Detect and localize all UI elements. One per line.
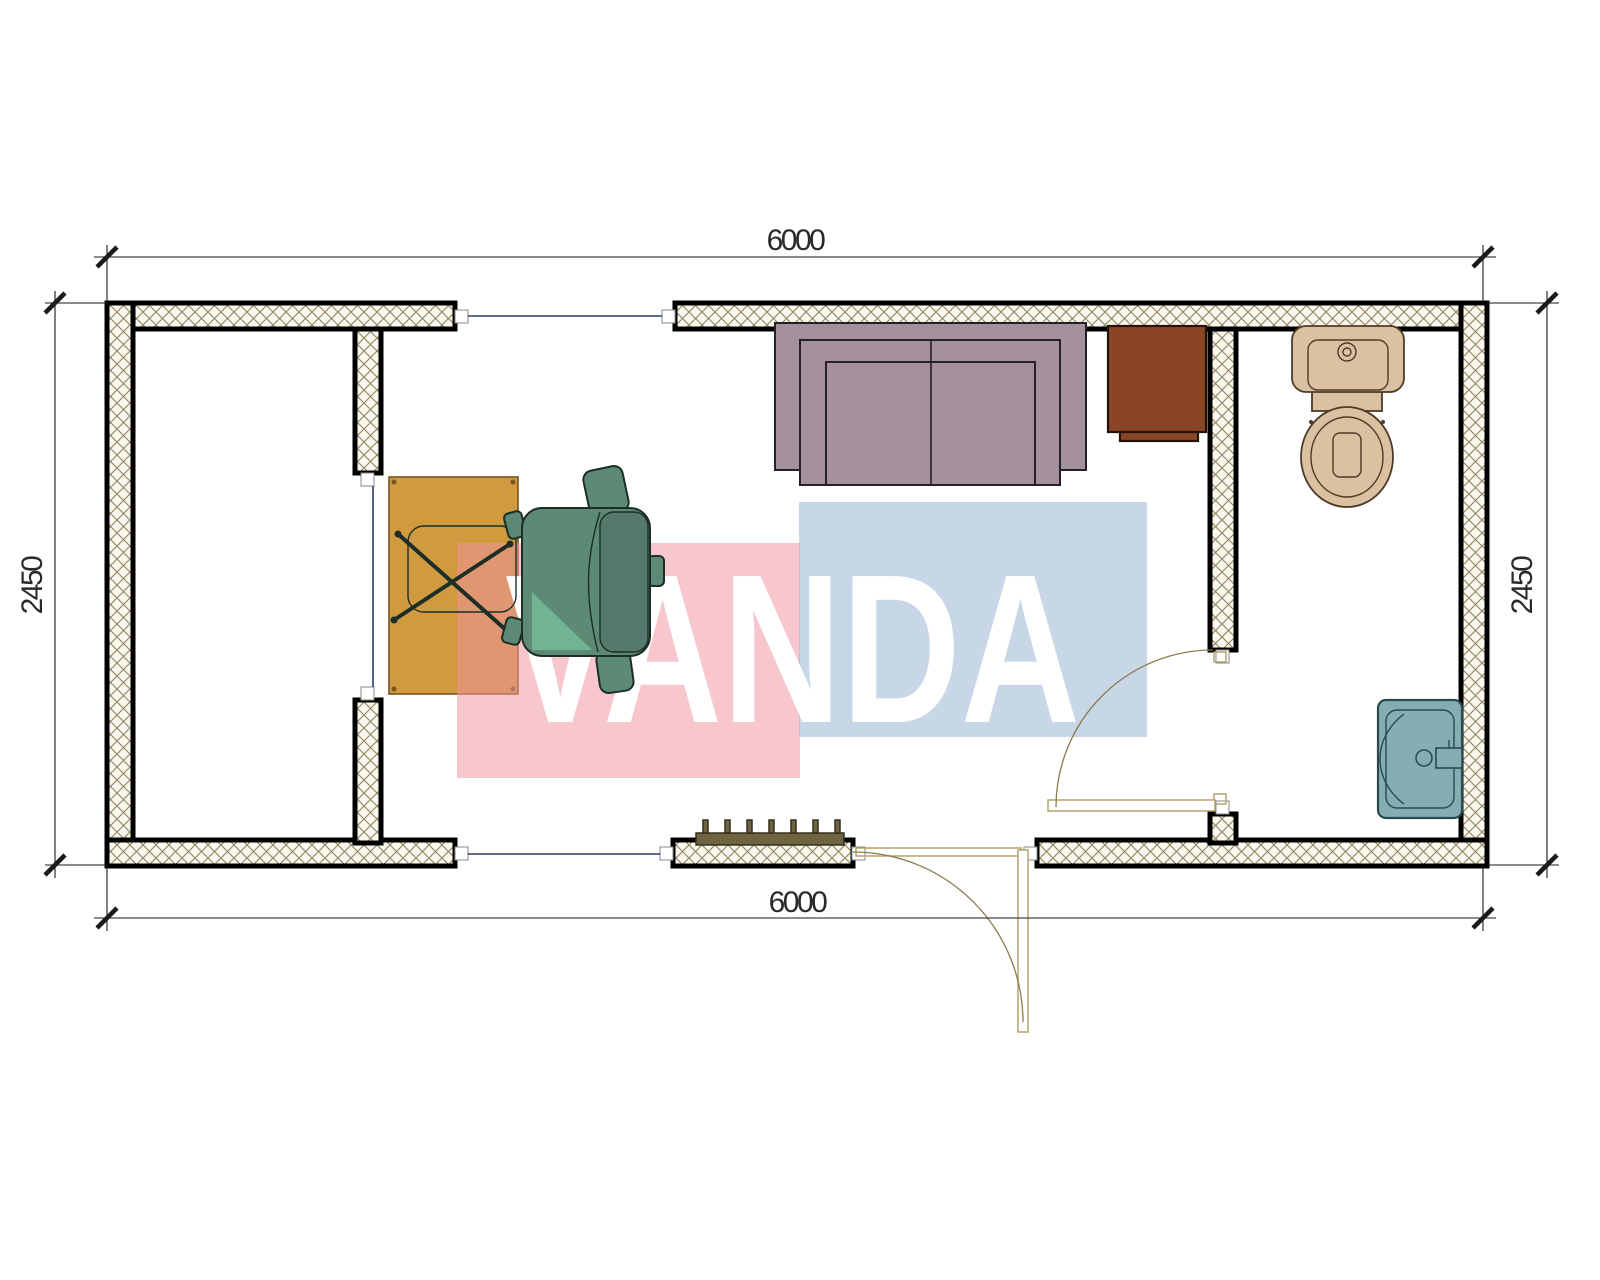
dim-label-right: 2450: [1506, 556, 1539, 615]
dimension-left: 2450: [16, 291, 107, 878]
cabinet: [1108, 326, 1206, 441]
wall-end-cap: [660, 847, 673, 860]
toilet: [1292, 326, 1404, 507]
wall-end-cap: [1216, 801, 1229, 814]
floor-plan-canvas: VANDA: [0, 0, 1600, 1280]
wall-end-cap: [361, 473, 374, 486]
wall-end-cap: [455, 310, 468, 323]
floor-plan-drawing: VANDA: [0, 0, 1600, 1280]
dimension-bottom: 6000: [94, 866, 1496, 931]
partition-wall-bath-upper: [1210, 329, 1236, 650]
sink: [1378, 700, 1462, 818]
wall-end-cap: [455, 847, 468, 860]
entrance-door-leaf: [1018, 850, 1028, 1032]
exterior-wall-bottom-left: [107, 840, 455, 866]
partition-wall-bath-stub: [1210, 814, 1236, 843]
dimension-right: 2450: [1487, 291, 1559, 878]
radiator: [696, 820, 844, 845]
dim-label-left: 2450: [16, 556, 49, 615]
sofa: [775, 323, 1086, 485]
exterior-wall-right: [1461, 303, 1487, 866]
entrance-door: [853, 848, 1028, 1032]
entrance-door-swing-arc: [853, 852, 1023, 1022]
dim-label-top: 6000: [767, 224, 826, 257]
wall-end-cap: [361, 687, 374, 700]
partition-wall-left-upper: [355, 329, 381, 473]
partition-wall-left-lower: [355, 700, 381, 843]
wall-end-cap: [662, 310, 675, 323]
exterior-wall-left: [107, 303, 133, 866]
dim-label-bottom: 6000: [769, 886, 828, 919]
bathroom-door-leaf: [1048, 800, 1215, 811]
exterior-wall-bottom-right: [1037, 840, 1487, 866]
wall-end-cap: [852, 847, 865, 860]
dimension-top: 6000: [94, 224, 1496, 303]
exterior-wall-top-left: [107, 303, 455, 329]
